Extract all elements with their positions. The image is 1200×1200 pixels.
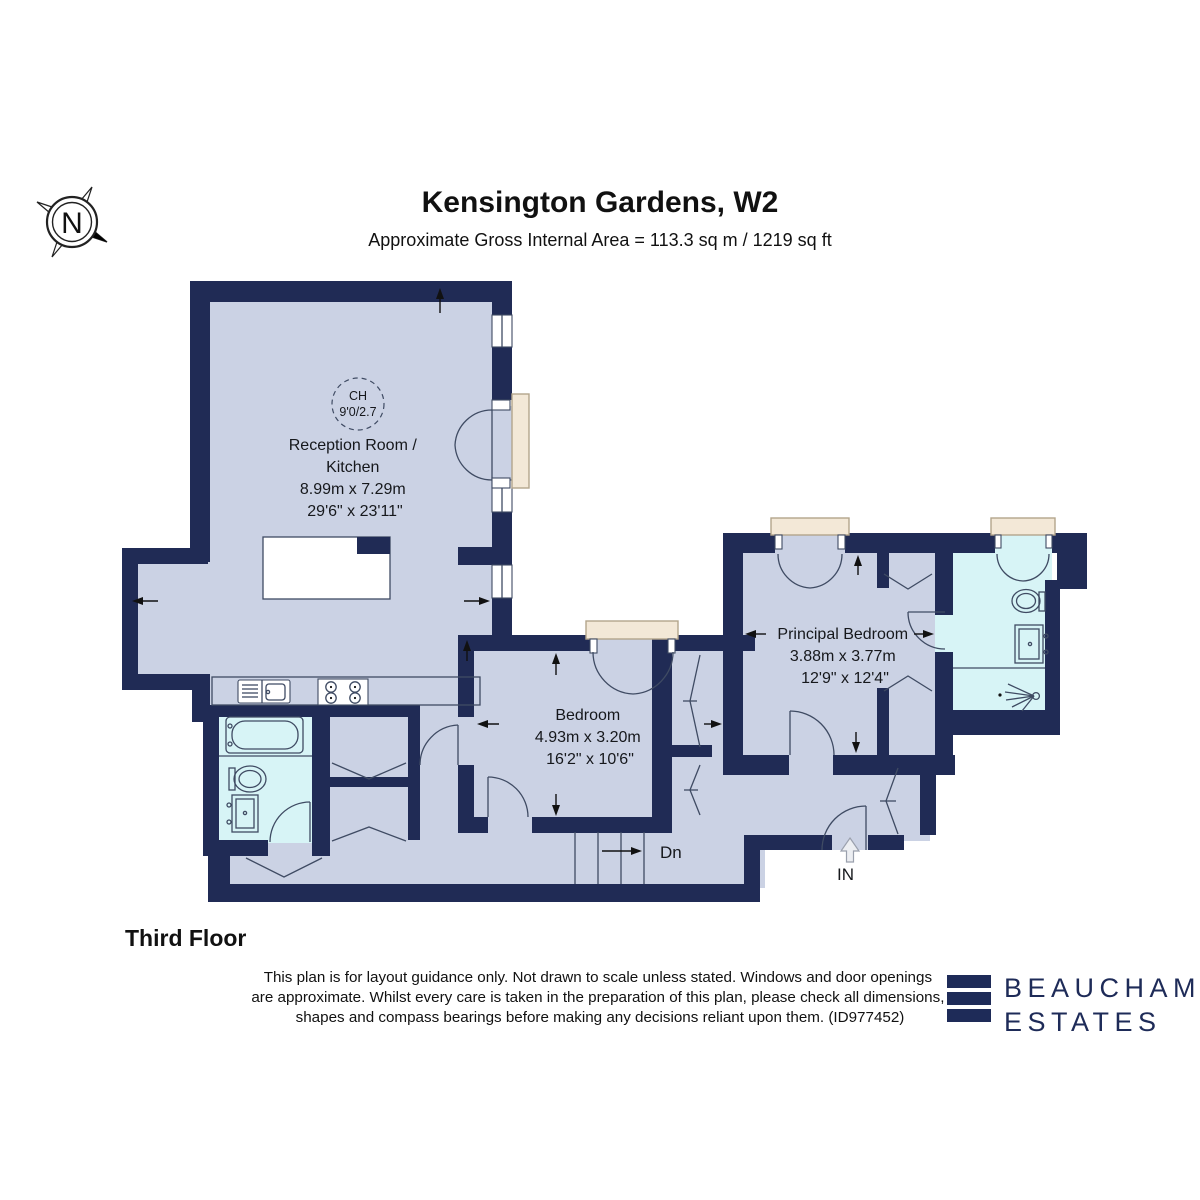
- window: [492, 315, 512, 347]
- compass-letter: N: [61, 207, 83, 240]
- beauchamp-estates-logo: BEAUCHAMP ESTATES: [947, 973, 1200, 1037]
- page-title: Kensington Gardens, W2: [422, 186, 779, 219]
- logo-name-line1: BEAUCHAMP: [1004, 973, 1200, 1003]
- logo-bar: [947, 992, 991, 1005]
- page-subtitle: Approximate Gross Internal Area = 113.3 …: [368, 230, 831, 250]
- ensuite-floor: [948, 545, 1052, 715]
- kitchen-sink: [238, 680, 290, 703]
- stove: [318, 679, 368, 705]
- logo-bar: [947, 1009, 991, 1022]
- floor-label: Third Floor: [125, 925, 246, 951]
- compass-icon: N: [37, 187, 107, 257]
- logo-name-line2: ESTATES: [1004, 1007, 1162, 1037]
- window: [492, 565, 512, 598]
- disclaimer: This plan is for layout guidance only. N…: [251, 969, 948, 1026]
- floorplan-canvas: N Kensington Gardens, W2 Approximate Gro…: [0, 0, 1200, 1200]
- floorplan-page: N Kensington Gardens, W2 Approximate Gro…: [0, 0, 1200, 1200]
- ceiling-height-value: 9'0/2.7: [339, 405, 376, 419]
- entrance-label: IN: [837, 865, 854, 884]
- stairs-down-label: Dn: [660, 843, 682, 862]
- logo-bar: [947, 975, 991, 988]
- ceiling-height-label: CH: [349, 389, 367, 403]
- kitchen-island: [263, 537, 390, 599]
